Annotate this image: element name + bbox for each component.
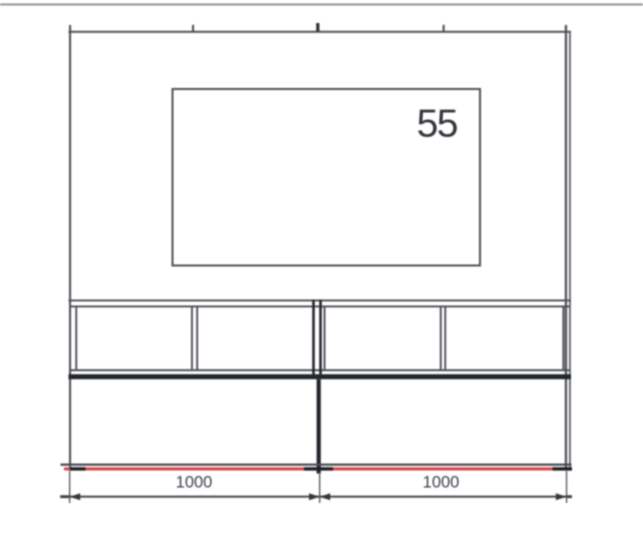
svg-text:55: 55: [417, 103, 458, 146]
svg-text:1000: 1000: [423, 474, 460, 492]
svg-text:1000: 1000: [176, 474, 213, 492]
